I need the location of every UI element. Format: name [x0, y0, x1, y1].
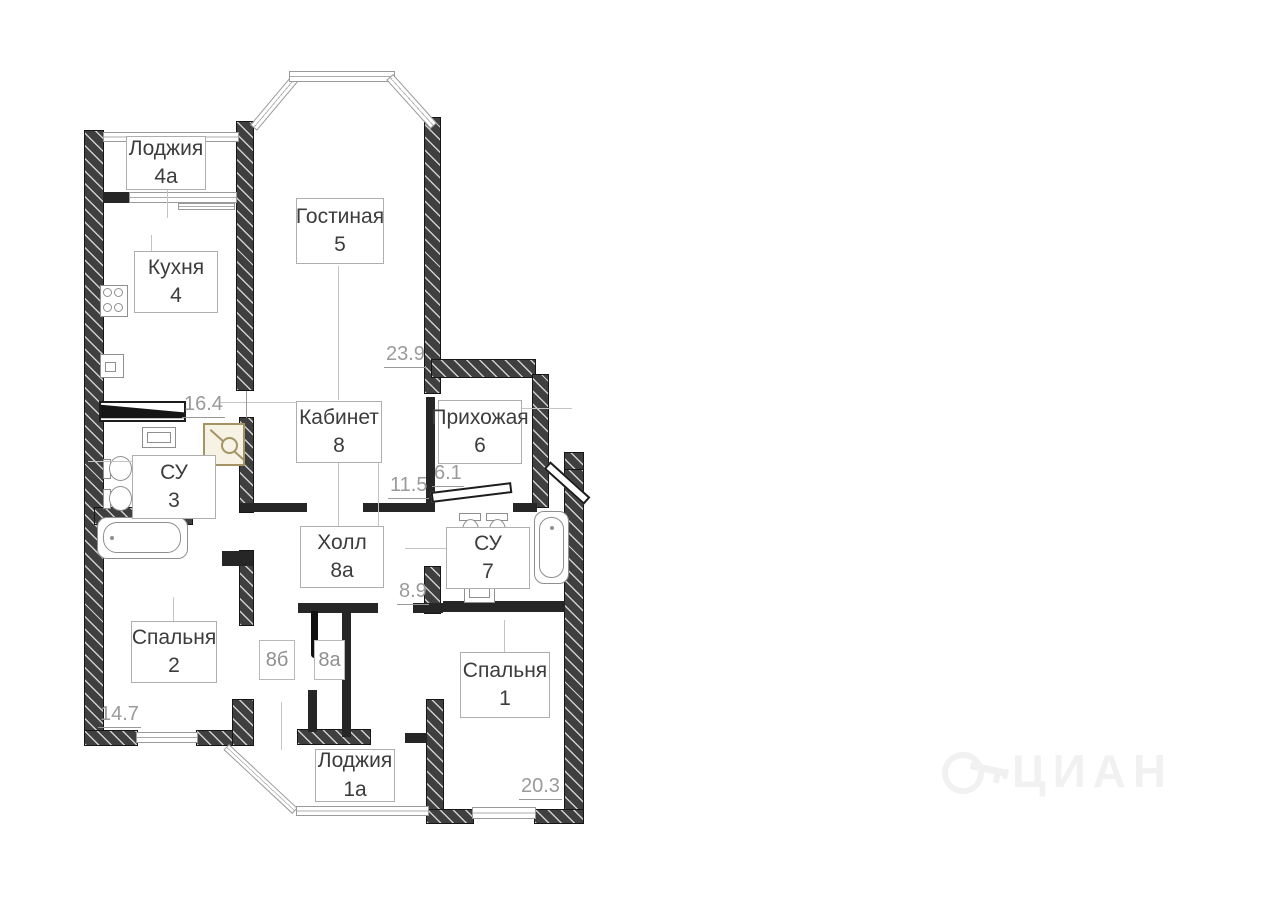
key-icon	[936, 746, 990, 800]
leader-line	[338, 462, 339, 526]
room-name: Лоджия	[129, 135, 203, 163]
sliding-door-icon	[99, 401, 186, 422]
wall	[443, 601, 565, 612]
room-number: 4	[170, 282, 182, 310]
room-number: 4а	[154, 163, 177, 191]
room-number: 1	[499, 685, 511, 713]
room-number: 8а	[330, 557, 353, 585]
closet-wall	[298, 603, 378, 613]
room-label-kitchen: Кухня 4	[134, 251, 218, 313]
room-name: Лоджия	[318, 747, 392, 775]
room-name: Кабинет	[299, 404, 379, 432]
wall	[85, 731, 137, 745]
room-label-loggia4a: Лоджия 4а	[126, 136, 206, 190]
window-bay-left	[250, 76, 298, 131]
toilet-icon	[109, 456, 132, 481]
wall	[405, 733, 427, 743]
leader-line	[338, 266, 339, 400]
room-label-living: Гостиная 5	[296, 198, 384, 264]
room-number: 3	[168, 487, 180, 515]
key-icon-tooth	[993, 771, 1001, 784]
room-number: 2	[168, 652, 180, 680]
room-number: 5	[334, 231, 346, 259]
door-jamb-line	[246, 391, 247, 418]
dim-hall: 8.9	[397, 581, 429, 605]
leader-line	[281, 702, 282, 750]
room-name: Холл	[317, 529, 367, 557]
window-bedroom2	[136, 732, 198, 743]
window-sill	[178, 203, 235, 210]
wall	[233, 700, 253, 745]
room-label-hall8a: Холл 8а	[300, 526, 384, 588]
room-label-wc3: СУ 3	[132, 455, 216, 519]
floor-plan: Лоджия 4а Кухня 4 Гостиная 5 Кабинет 8 П…	[0, 0, 1280, 906]
stove-icon	[100, 285, 128, 317]
wall	[432, 360, 535, 377]
wall	[298, 730, 370, 744]
wall	[197, 731, 235, 745]
bathtub-icon	[97, 517, 188, 559]
shower-head-icon	[221, 437, 238, 454]
wall	[240, 503, 307, 512]
dim-kitchen: 16.4	[182, 394, 225, 418]
bathtub-inner	[103, 522, 181, 553]
room-label-wc7: СУ 7	[446, 527, 530, 589]
wall	[222, 551, 253, 566]
room-label-study: Кабинет 8	[296, 401, 382, 463]
wall	[237, 122, 253, 390]
wall	[103, 192, 129, 203]
window-loggia1a	[296, 806, 429, 816]
room-number: 6	[474, 432, 486, 460]
window-loggia1a-diagonal	[224, 744, 298, 814]
room-name: Спальня	[463, 657, 547, 685]
window-loggia4a-inner	[129, 192, 237, 203]
room-name: Прихожая	[431, 404, 528, 432]
closet-number: 8б	[266, 649, 289, 672]
basin-bowl	[147, 432, 171, 443]
wall	[85, 131, 103, 745]
window-bedroom1	[472, 807, 536, 819]
room-number: 1а	[343, 776, 366, 804]
wall	[427, 700, 443, 823]
room-number: 8	[333, 432, 345, 460]
key-icon-tooth	[1002, 769, 1009, 780]
room-name: СУ	[160, 459, 188, 487]
wall	[427, 810, 473, 823]
watermark-text: ЦИАН	[1012, 744, 1173, 798]
room-name: СУ	[474, 530, 502, 558]
dim-hallway: 6.1	[432, 463, 464, 487]
basin-bowl	[469, 588, 490, 598]
wall	[513, 503, 537, 512]
closet-label-8a: 8а	[314, 640, 345, 680]
leader-line	[504, 620, 505, 652]
closet-number: 8а	[318, 649, 340, 672]
room-number: 7	[482, 558, 494, 586]
drain-dot	[110, 536, 114, 540]
leader-line	[405, 548, 450, 549]
wall	[363, 503, 427, 512]
room-name: Гостиная	[296, 203, 384, 231]
closet-wall	[308, 690, 317, 732]
window-bay-right	[386, 74, 437, 129]
door-wedge	[101, 403, 184, 420]
dim-bedroom1: 20.3	[519, 776, 562, 800]
watermark: ЦИАН	[940, 738, 1170, 810]
wall	[533, 375, 548, 507]
dim-study: 11.5	[388, 475, 429, 499]
wall	[535, 810, 583, 823]
dim-living: 23.9	[384, 344, 427, 368]
toilet-icon	[109, 486, 132, 511]
bathtub-icon	[534, 511, 569, 584]
room-label-hallway: Прихожая 6	[438, 400, 522, 464]
leader-line	[173, 597, 174, 621]
dim-bedroom2: 14.7	[98, 704, 141, 728]
closet-label-8b: 8б	[259, 640, 295, 680]
window-bay-top	[289, 71, 395, 82]
leader-line	[522, 408, 572, 409]
sink-bowl	[105, 362, 116, 372]
room-name: Кухня	[148, 254, 204, 282]
room-label-bedroom1: Спальня 1	[460, 652, 550, 718]
room-label-bedroom2: Спальня 2	[131, 621, 217, 683]
drain-dot	[550, 526, 554, 530]
kitchen-sink-icon	[100, 354, 124, 378]
washbasin-icon	[142, 427, 176, 448]
leader-line	[88, 461, 132, 462]
wall	[425, 118, 440, 393]
room-label-loggia1a: Лоджия 1а	[315, 749, 395, 802]
room-name: Спальня	[132, 624, 216, 652]
